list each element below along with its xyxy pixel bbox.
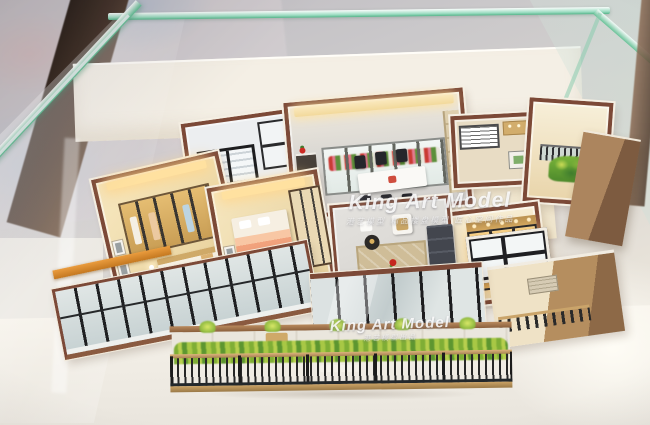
dining-chair (375, 151, 387, 165)
dining-chair (354, 155, 366, 169)
pillow (257, 216, 270, 226)
watermark-center: King Art Model 港艺模型 精品楼盘模型 匠心空间作品 (296, 188, 565, 229)
dining-chair (396, 148, 408, 162)
slatted-window (459, 124, 500, 150)
window-pane (471, 238, 503, 259)
table-centerpiece (388, 175, 397, 183)
railing-lights (320, 365, 360, 373)
balcony-railing (170, 352, 512, 387)
plant-tuft (199, 321, 215, 333)
photo-apartment-model: King Art Model 港艺模型 精品楼盘模型 匠心空间作品 King A… (0, 0, 650, 425)
watermark-title: King Art Model (296, 188, 564, 217)
balcony-railing (498, 304, 591, 333)
pillow (239, 219, 252, 229)
window-pane (505, 233, 545, 255)
ac-unit (527, 275, 559, 295)
plant-tuft (264, 320, 280, 332)
